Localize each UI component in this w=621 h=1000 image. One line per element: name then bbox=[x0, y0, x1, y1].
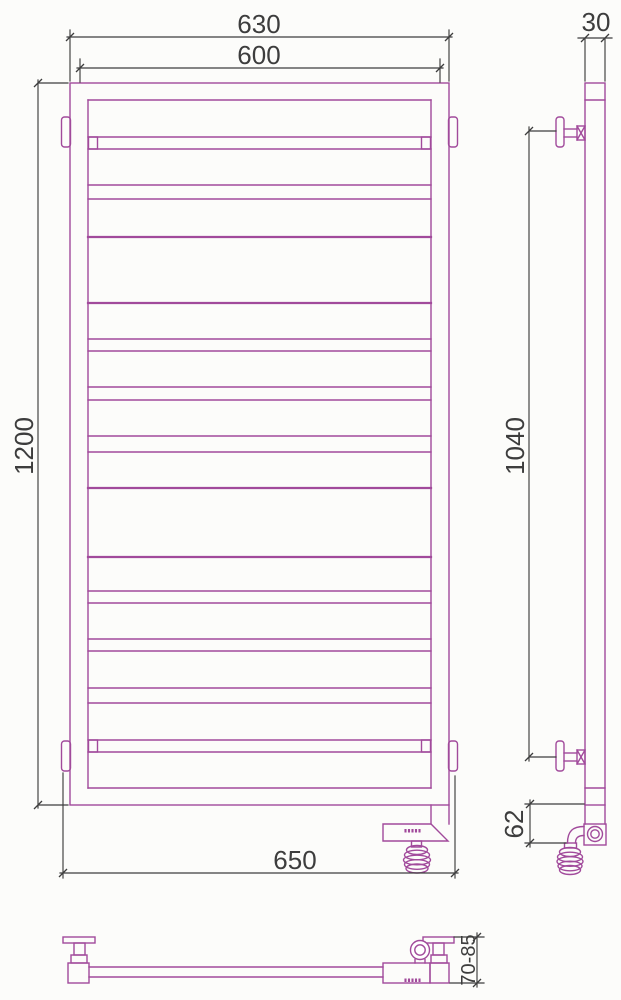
side-wall-bracket-top bbox=[556, 117, 585, 147]
dim-label-650: 650 bbox=[273, 845, 316, 875]
dim-label-70-85: 70-85 bbox=[458, 934, 480, 985]
wall-bracket bbox=[449, 741, 458, 771]
dim-label-30: 30 bbox=[582, 7, 611, 37]
side-view bbox=[556, 83, 606, 875]
dim-element-height: 62 bbox=[499, 800, 584, 847]
plan-wall-bracket-left bbox=[63, 937, 95, 963]
dim-mounting-width: 650 bbox=[59, 773, 459, 878]
terminal-dashes bbox=[406, 829, 420, 833]
shelf-cap bbox=[422, 740, 431, 752]
dim-overall-height: 1200 bbox=[9, 79, 68, 809]
thermostat-knob bbox=[411, 941, 430, 964]
dim-label-1040: 1040 bbox=[500, 417, 530, 475]
side-wall-bracket-bottom bbox=[556, 741, 585, 771]
dim-tube-depth: 30 bbox=[578, 7, 612, 81]
top-view bbox=[63, 937, 454, 983]
left-collector-top bbox=[68, 963, 89, 983]
elbow-inner bbox=[576, 836, 585, 844]
front-frame-outline bbox=[70, 83, 449, 805]
dimensions: 630 600 1200 650 30 bbox=[9, 7, 612, 987]
wall-bracket bbox=[449, 117, 458, 147]
dim-label-630: 630 bbox=[237, 9, 280, 39]
drawing-canvas: 630 600 1200 650 30 bbox=[0, 0, 621, 1000]
dim-label-600: 600 bbox=[237, 40, 280, 70]
shelf-cap bbox=[89, 137, 98, 149]
dim-wall-offset: 70-85 bbox=[450, 933, 484, 987]
shelf-cap bbox=[422, 137, 431, 149]
dim-label-1200: 1200 bbox=[9, 417, 39, 475]
side-heating-element bbox=[557, 805, 606, 875]
side-tube bbox=[585, 83, 605, 805]
towel-rail-technical-drawing: 630 600 1200 650 30 bbox=[0, 0, 621, 1000]
shelf-cap bbox=[89, 740, 98, 752]
wall-bracket bbox=[62, 117, 71, 147]
cable-coil bbox=[404, 846, 431, 874]
wall-bracket bbox=[62, 741, 71, 771]
dim-rail-width: 600 bbox=[76, 40, 444, 82]
front-view bbox=[62, 83, 458, 873]
right-collector-top bbox=[430, 963, 449, 983]
dim-label-62: 62 bbox=[499, 810, 529, 839]
cable-coil bbox=[557, 848, 583, 875]
dim-bracket-spacing: 1040 bbox=[500, 127, 556, 761]
terminal-dashes bbox=[406, 979, 420, 983]
